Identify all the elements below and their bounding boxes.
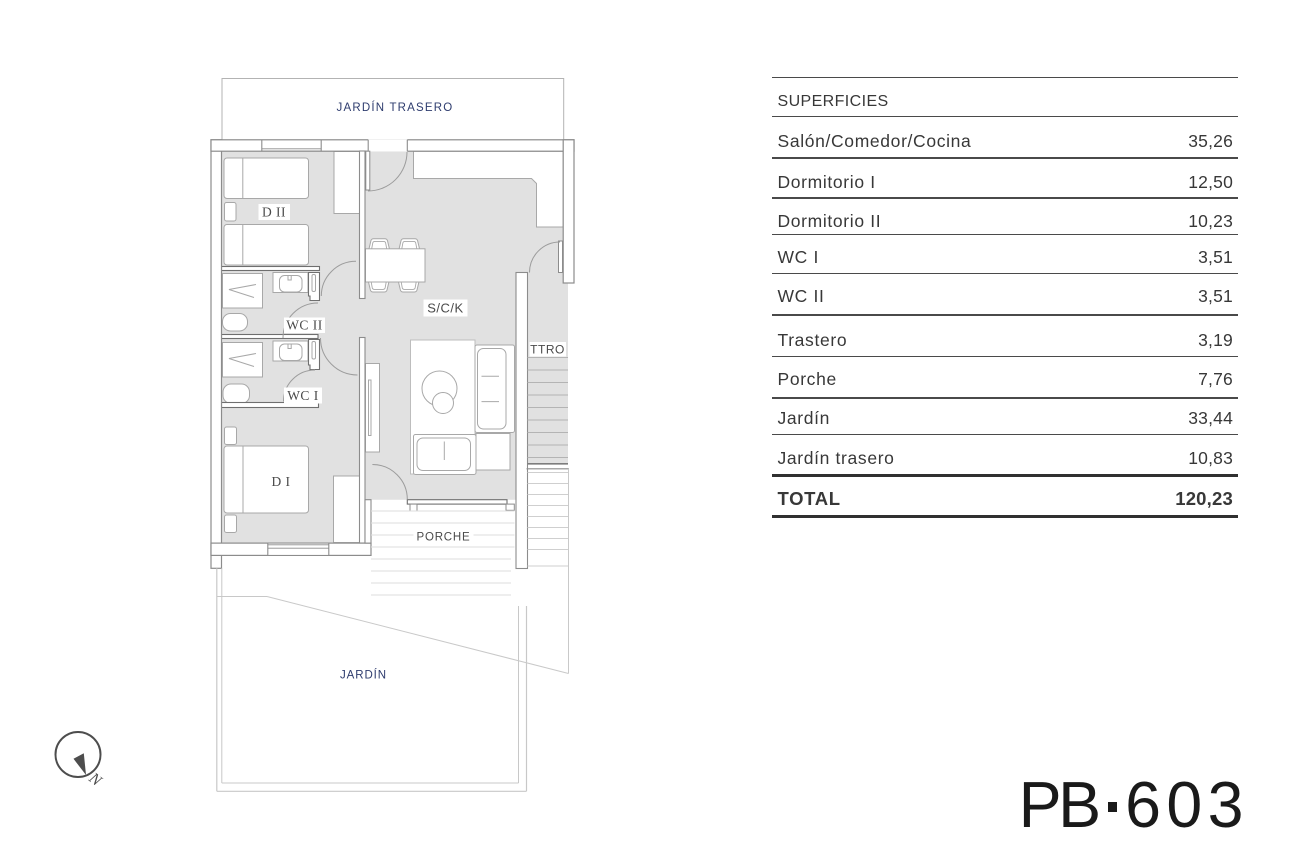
svg-text:WC I: WC I bbox=[287, 388, 319, 403]
svg-text:D I: D I bbox=[271, 474, 290, 489]
svg-text:D II: D II bbox=[262, 205, 286, 220]
svg-text:JARDÍN: JARDÍN bbox=[340, 669, 387, 682]
svg-text:S/C/K: S/C/K bbox=[427, 301, 463, 316]
svg-text:TTRO: TTRO bbox=[530, 343, 565, 357]
svg-text:WC II: WC II bbox=[286, 318, 323, 333]
svg-text:N: N bbox=[85, 769, 106, 790]
svg-text:PORCHE: PORCHE bbox=[416, 532, 470, 544]
svg-text:JARDÍN TRASERO: JARDÍN TRASERO bbox=[337, 101, 454, 114]
